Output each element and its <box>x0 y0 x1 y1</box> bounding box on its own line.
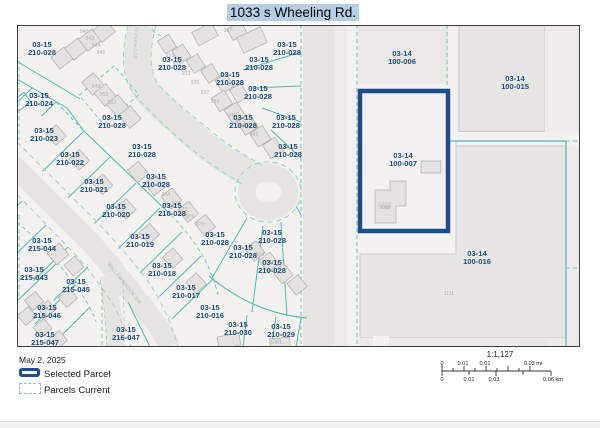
svg-text:210-028: 210-028 <box>229 251 257 260</box>
svg-text:955: 955 <box>100 92 109 98</box>
svg-text:210-028: 210-028 <box>98 121 126 130</box>
svg-text:939: 939 <box>211 99 220 105</box>
svg-text:210-017: 210-017 <box>172 291 200 300</box>
svg-text:978: 978 <box>196 222 205 228</box>
svg-text:927: 927 <box>224 28 233 34</box>
svg-text:210-016: 210-016 <box>196 311 224 320</box>
svg-text:210-028: 210-028 <box>158 209 186 218</box>
svg-text:210-024: 210-024 <box>25 99 54 108</box>
svg-text:976: 976 <box>186 214 195 220</box>
svg-text:100-015: 100-015 <box>501 82 530 91</box>
svg-text:0.06 km: 0.06 km <box>543 377 563 383</box>
svg-text:210-028: 210-028 <box>158 63 186 72</box>
svg-text:216-047: 216-047 <box>112 333 140 342</box>
svg-text:946: 946 <box>97 50 106 56</box>
svg-text:210-028: 210-028 <box>216 78 244 87</box>
svg-text:937: 937 <box>201 90 210 96</box>
svg-text:0.01: 0.01 <box>480 361 491 367</box>
svg-text:210-018: 210-018 <box>148 269 176 278</box>
svg-text:210-028: 210-028 <box>258 236 286 245</box>
svg-text:215-044: 215-044 <box>28 244 57 253</box>
svg-text:952: 952 <box>108 100 117 106</box>
svg-text:940: 940 <box>80 29 89 35</box>
svg-text:210-020: 210-020 <box>102 210 130 219</box>
svg-text:210-028: 210-028 <box>128 150 156 159</box>
svg-text:210-028: 210-028 <box>201 238 229 247</box>
svg-text:100-007: 100-007 <box>389 159 417 168</box>
svg-text:215-045: 215-045 <box>62 285 91 294</box>
svg-text:948: 948 <box>92 84 101 90</box>
svg-text:935: 935 <box>191 80 200 86</box>
svg-text:215-046: 215-046 <box>33 311 61 320</box>
svg-text:0.01: 0.01 <box>464 377 475 383</box>
svg-text:1001: 1001 <box>270 340 282 346</box>
svg-text:210-028: 210-028 <box>274 150 302 159</box>
svg-text:215-043: 215-043 <box>20 273 48 282</box>
svg-text:210-029: 210-029 <box>267 330 295 339</box>
svg-text:210-028: 210-028 <box>258 266 286 275</box>
svg-text:210-028: 210-028 <box>229 121 257 130</box>
svg-text:100-006: 100-006 <box>388 57 416 66</box>
svg-text:215-047: 215-047 <box>31 338 59 347</box>
svg-text:210-028: 210-028 <box>273 48 301 57</box>
svg-text:942: 942 <box>86 36 95 42</box>
svg-text:210-028: 210-028 <box>142 180 170 189</box>
svg-text:210-030: 210-030 <box>224 328 252 337</box>
svg-text:100-016: 100-016 <box>463 257 491 266</box>
svg-text:210-021: 210-021 <box>80 185 109 194</box>
svg-text:1033: 1033 <box>380 205 391 210</box>
svg-text:210-019: 210-019 <box>126 240 154 249</box>
svg-text:0: 0 <box>440 361 443 367</box>
svg-text:0: 0 <box>440 377 443 383</box>
svg-text:210-028: 210-028 <box>244 92 272 101</box>
svg-text:210-023: 210-023 <box>30 134 58 143</box>
svg-text:210-028: 210-028 <box>272 121 300 130</box>
svg-text:210-028: 210-028 <box>245 63 273 72</box>
svg-text:210-028: 210-028 <box>28 48 56 57</box>
svg-text:0.03: 0.03 <box>489 377 500 383</box>
svg-text:0.03 mi: 0.03 mi <box>524 361 542 367</box>
svg-text:944: 944 <box>92 43 101 49</box>
svg-text:964: 964 <box>162 192 171 198</box>
svg-text:949: 949 <box>250 132 259 138</box>
svg-text:210-022: 210-022 <box>56 158 84 167</box>
svg-text:0.01: 0.01 <box>458 361 469 367</box>
svg-text:1111: 1111 <box>444 291 454 297</box>
